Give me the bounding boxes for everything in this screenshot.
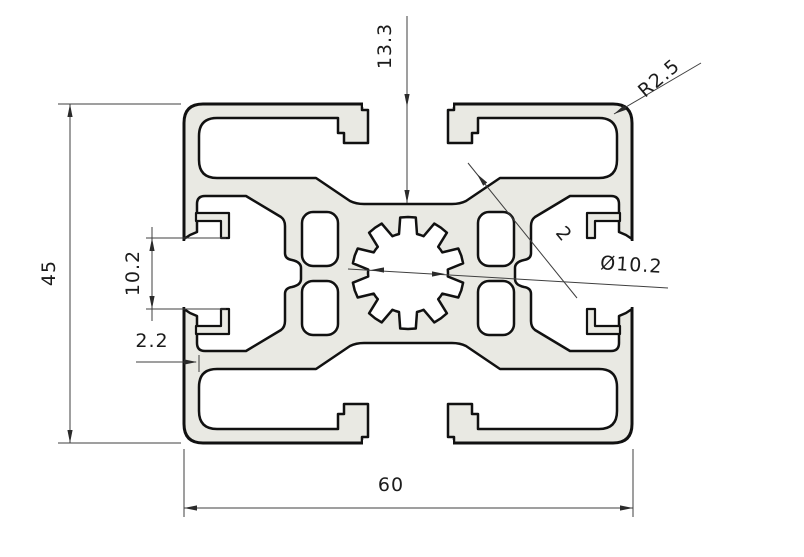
dim-height-arrow-bottom: [67, 430, 72, 443]
dim-wall-label: 2.2: [135, 330, 168, 352]
dim-height-label: 45: [38, 260, 60, 286]
dim-hole-label: Ø10.2: [600, 252, 663, 278]
dim-opening-arrow-bottom: [149, 296, 154, 309]
dim-width-arrow-left: [184, 505, 197, 510]
dim-corner-radius-label: R2.5: [634, 55, 684, 102]
core-cavity-lower-right: [478, 281, 514, 335]
extrusion-profile-drawing: 13.3 R2.5 45 10.2 2.2 2 Ø10.2 60: [0, 0, 804, 557]
dim-opening-arrow-top: [149, 238, 154, 251]
dim-width-arrow-right: [620, 505, 633, 510]
dim-opening-label: 10.2: [122, 250, 144, 296]
bottom-opening-gap: [363, 440, 453, 447]
left-opening-gap: [180, 241, 188, 307]
core-cavity-lower-left: [302, 281, 338, 335]
dim-width-label: 60: [378, 474, 404, 496]
dim-height-arrow-top: [67, 104, 72, 117]
core-cavity-upper-left: [302, 212, 338, 266]
drawing-canvas: 13.3 R2.5 45 10.2 2.2 2 Ø10.2 60: [0, 0, 804, 557]
dim-slot-depth-label: 13.3: [374, 23, 396, 69]
core-cavity-upper-right: [478, 212, 514, 266]
